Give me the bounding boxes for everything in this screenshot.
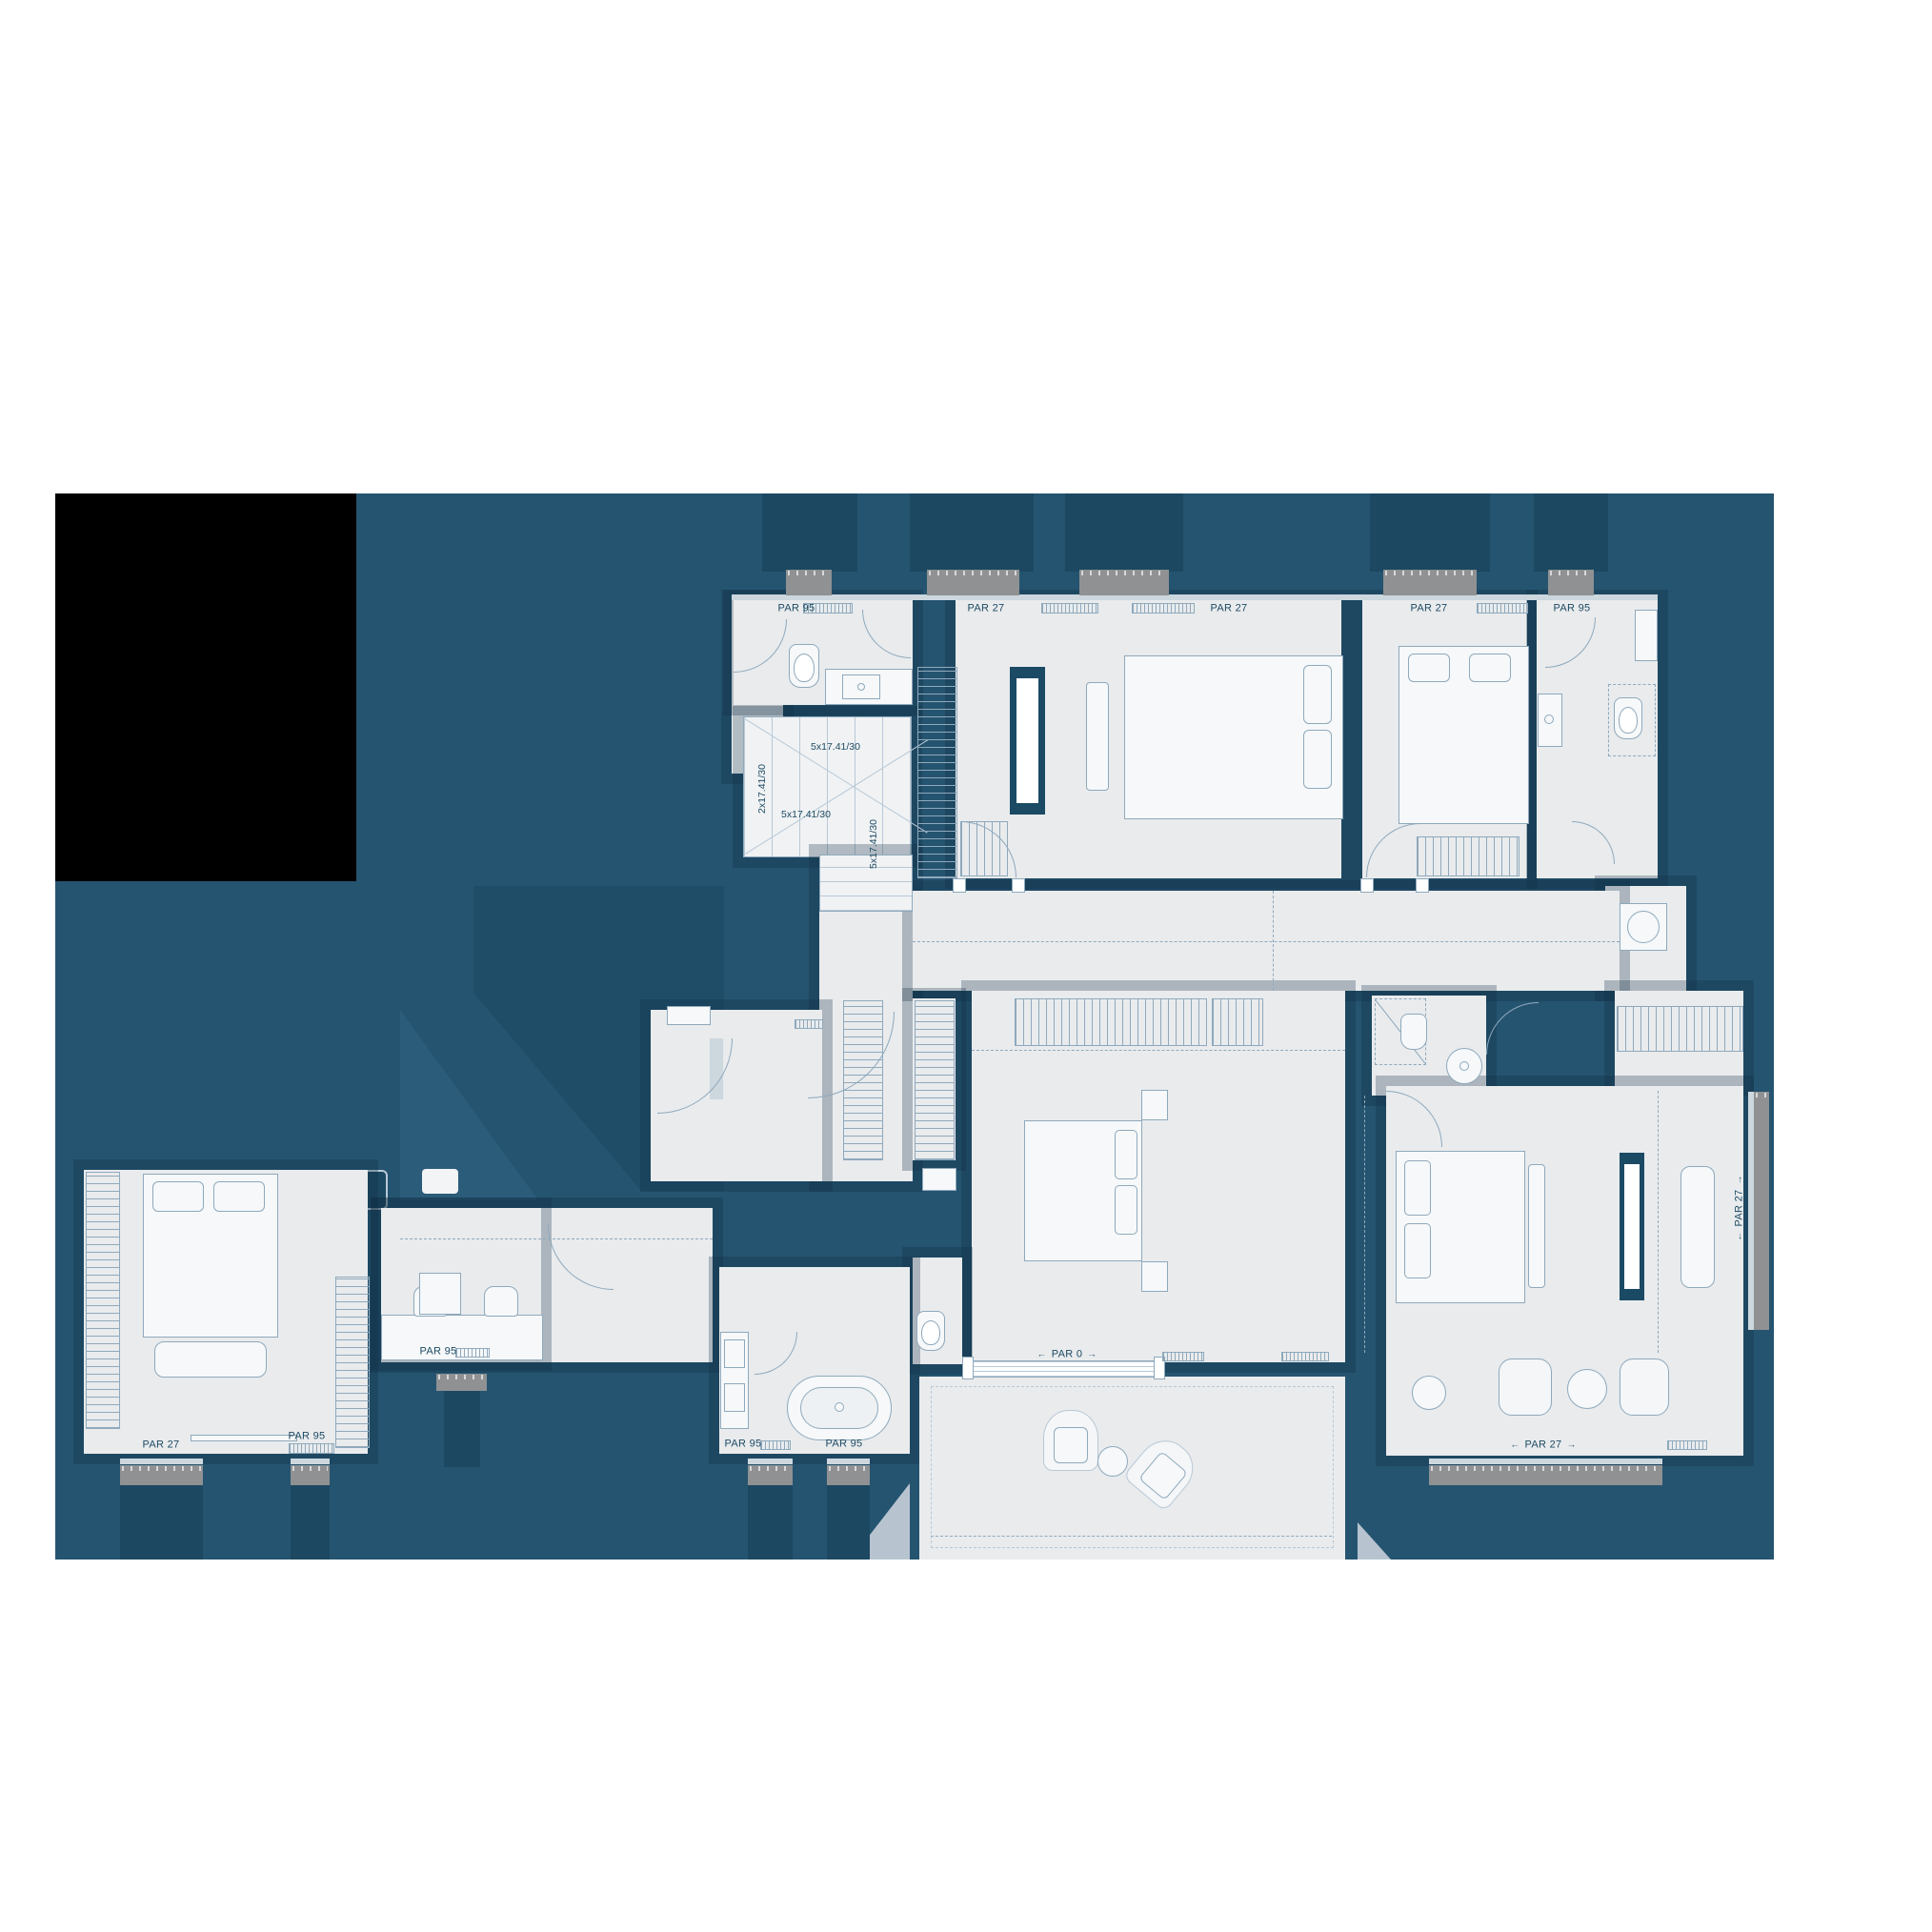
- toilet-bowl: [1619, 707, 1638, 734]
- room-label-bath-top-left: PAR 95: [778, 604, 815, 614]
- console-table: [667, 1006, 711, 1025]
- window: [120, 1465, 203, 1485]
- bed-bench: [154, 1341, 267, 1378]
- terrace-armchair-seat: [1054, 1427, 1088, 1463]
- radiator: [1041, 603, 1098, 614]
- dormer-shaft: [762, 493, 857, 572]
- pouf: [1412, 1376, 1446, 1410]
- stair-steps-down: [819, 855, 913, 912]
- pillow: [213, 1181, 265, 1212]
- window: [827, 1465, 870, 1485]
- skylight: [422, 1169, 458, 1194]
- door-jamb: [1360, 878, 1374, 893]
- room-label-bedroom-bottom-left-2: PAR 95: [289, 1432, 326, 1442]
- stair-annotation-down: 5x17.41/30: [869, 819, 879, 869]
- toilet: [1400, 1014, 1427, 1050]
- stair-annotation-top: 5x17.41/30: [811, 742, 860, 753]
- room-label-master-bath-left: PAR 95: [725, 1439, 762, 1450]
- dormer-shaft: [748, 1485, 793, 1560]
- wardrobe: [1617, 1006, 1743, 1052]
- armchair: [1620, 1358, 1669, 1416]
- window-sill: [120, 1459, 203, 1464]
- guide-line: [1273, 891, 1274, 991]
- pillow: [1303, 730, 1332, 789]
- side-table: [1567, 1369, 1607, 1409]
- roof-window: [1079, 570, 1169, 595]
- wardrobe: [1212, 998, 1263, 1046]
- window-sill: [748, 1459, 793, 1464]
- pillow: [1115, 1130, 1137, 1179]
- roof-window: [786, 570, 832, 595]
- terrace-dashed-line: [931, 1536, 1332, 1537]
- wardrobe: [86, 1172, 120, 1429]
- radiator: [1281, 1352, 1329, 1361]
- door-jamb: [962, 1357, 974, 1379]
- pillow: [1469, 654, 1511, 682]
- armchair: [1499, 1358, 1552, 1416]
- radiator: [1162, 1352, 1204, 1361]
- toilet-bowl: [921, 1320, 940, 1345]
- sink-drain: [1544, 714, 1554, 724]
- roof-window: [927, 570, 1019, 595]
- arrow-right-icon: →: [1735, 1170, 1745, 1189]
- wardrobe: [915, 1000, 955, 1160]
- dormer-shaft: [120, 1485, 203, 1560]
- radiator: [1132, 603, 1195, 614]
- window-sill-band-top: [732, 594, 1658, 600]
- cabinet: [1635, 610, 1658, 661]
- arrow-right-icon: →: [1561, 1440, 1580, 1451]
- sink: [724, 1339, 745, 1368]
- sink-drain: [857, 683, 865, 691]
- arrow-right-icon: →: [1082, 1350, 1101, 1360]
- radiator: [1667, 1440, 1707, 1450]
- guide-line: [972, 1050, 1345, 1051]
- room-label-bath-top-right: PAR 95: [1554, 604, 1591, 614]
- room-label-master-bath-center: PAR 95: [826, 1439, 863, 1450]
- room-label-dressing: PAR 95: [420, 1347, 457, 1358]
- arrow-left-icon: ←: [1505, 1440, 1524, 1451]
- guide-line: [400, 1238, 713, 1239]
- bathtub-drain: [835, 1402, 844, 1412]
- room-label-suite-bottom: ←PAR 27→: [1505, 1440, 1581, 1451]
- dormer-shaft: [1065, 493, 1183, 572]
- room-label-terrace-door: ←PAR 0→: [1032, 1350, 1101, 1360]
- door-jamb: [953, 878, 966, 893]
- bed-bench: [1528, 1164, 1545, 1288]
- bed-bench: [1086, 682, 1109, 791]
- sofa: [1680, 1166, 1715, 1288]
- guide-line: [1658, 1091, 1659, 1353]
- stair-annotation-left: 2x17.41/30: [757, 764, 768, 814]
- cabinet: [419, 1273, 461, 1315]
- room-label-text: PAR 0: [1052, 1349, 1082, 1360]
- tv-board: [191, 1435, 297, 1441]
- radiator: [289, 1443, 334, 1454]
- nightstand: [1141, 1090, 1168, 1120]
- door-jamb: [1416, 878, 1429, 893]
- room-label-bedroom-top-1-right: PAR 27: [1211, 604, 1248, 614]
- window: [1429, 1465, 1662, 1485]
- dormer-shaft: [910, 493, 1034, 572]
- dormer-shaft: [444, 1391, 480, 1467]
- nightstand: [1141, 1261, 1168, 1292]
- guide-line: [913, 941, 1620, 942]
- pillow: [1115, 1185, 1137, 1235]
- dresser: [922, 1168, 956, 1191]
- arrow-left-icon: ←: [1735, 1226, 1745, 1245]
- pillow: [1303, 665, 1332, 724]
- window: [291, 1465, 330, 1485]
- window: [748, 1465, 793, 1485]
- dormer-shaft: [827, 1485, 870, 1560]
- window-sill: [291, 1459, 330, 1464]
- roof-window: [1548, 570, 1594, 595]
- dormer-shaft: [291, 1485, 330, 1560]
- guide-line: [1364, 1096, 1365, 1353]
- window-sill: [827, 1459, 870, 1464]
- wardrobe: [1417, 836, 1519, 876]
- room-label-bedroom-bottom-left: PAR 27: [143, 1440, 180, 1451]
- masked-black-area: [55, 493, 356, 881]
- pillow: [1404, 1223, 1431, 1278]
- round-sink-drain: [1459, 1061, 1469, 1071]
- wardrobe: [335, 1277, 370, 1448]
- door-jamb: [1012, 878, 1025, 893]
- stool: [484, 1286, 518, 1317]
- wardrobe: [917, 667, 957, 878]
- arrow-left-icon: ←: [1032, 1350, 1051, 1360]
- floor-plan-page: PAR 95 PAR 27 PAR 27 PAR 27 PAR 95 ←PAR …: [0, 0, 1932, 1932]
- terrace-sliding-door: [970, 1360, 1157, 1378]
- sink: [724, 1383, 745, 1412]
- wardrobe: [1015, 998, 1207, 1046]
- room-label-bedroom-top-1-left: PAR 27: [968, 604, 1005, 614]
- stair-annotation-mid: 5x17.41/30: [781, 810, 831, 820]
- washing-machine-drum: [1627, 911, 1660, 943]
- window-dressing: [436, 1374, 487, 1391]
- toilet-bowl: [794, 654, 815, 682]
- pillow: [1404, 1160, 1431, 1216]
- radiator: [455, 1348, 490, 1358]
- window-sill: [1429, 1459, 1662, 1464]
- pillow: [1408, 654, 1450, 682]
- tv-wall-inset: [1016, 678, 1038, 803]
- tv-wall-inset: [1624, 1164, 1640, 1289]
- room-label-bedroom-top-2: PAR 27: [1411, 604, 1448, 614]
- radiator: [1477, 603, 1528, 614]
- dormer-shaft: [1370, 493, 1490, 572]
- roof-window: [1383, 570, 1477, 595]
- terrace-table: [1097, 1446, 1128, 1477]
- room-label-suite-right-wall: ←PAR 27→: [1735, 1170, 1745, 1246]
- room-label-text: PAR 27: [1525, 1439, 1562, 1451]
- room-label-text: PAR 27: [1734, 1190, 1745, 1227]
- window-vertical: [1754, 1092, 1769, 1330]
- radiator: [795, 1019, 823, 1029]
- pillow: [152, 1181, 204, 1212]
- staircase: [743, 716, 912, 857]
- radiator: [760, 1440, 791, 1450]
- dormer-shaft: [1534, 493, 1608, 572]
